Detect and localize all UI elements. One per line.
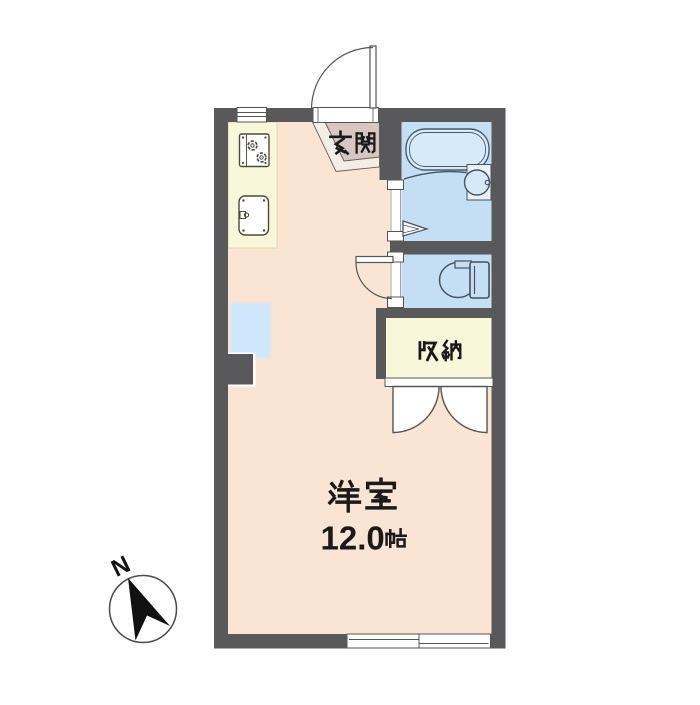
svg-text:12.0: 12.0 [321, 520, 385, 557]
